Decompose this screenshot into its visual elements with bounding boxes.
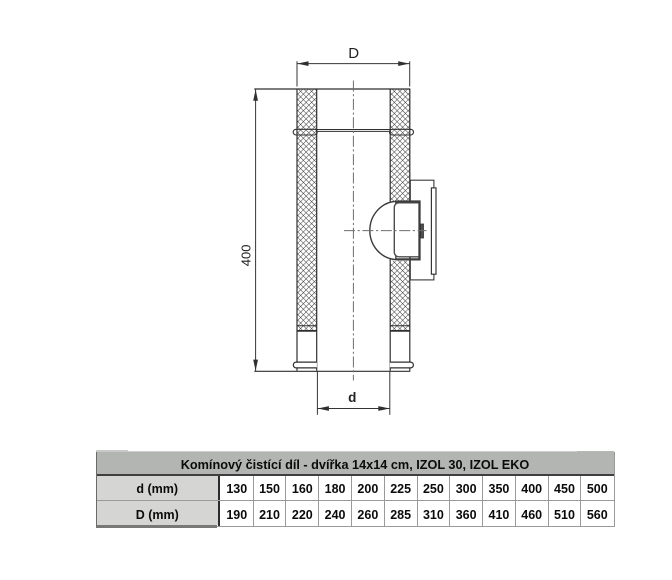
svg-text:d: d: [348, 390, 356, 405]
svg-text:400: 400: [239, 245, 254, 267]
svg-text:D: D: [348, 45, 359, 62]
